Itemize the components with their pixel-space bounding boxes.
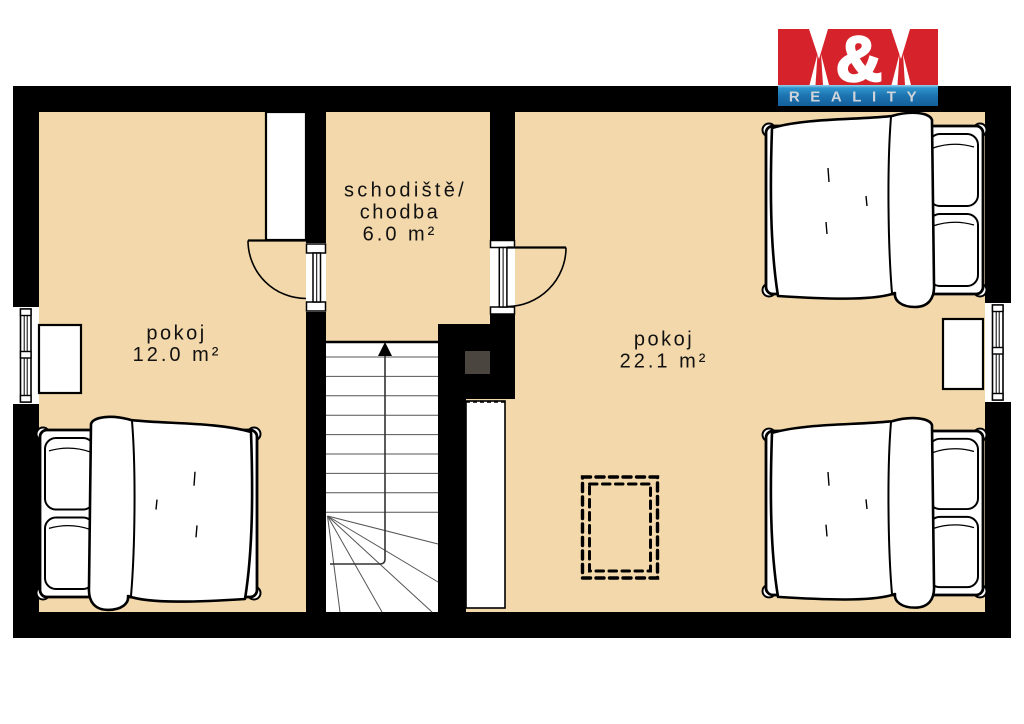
svg-text:REALITY: REALITY <box>789 89 927 106</box>
svg-text:chodba: chodba <box>360 202 441 224</box>
svg-text:pokoj: pokoj <box>634 329 694 351</box>
svg-text:22.1 m²: 22.1 m² <box>620 351 709 373</box>
svg-text:schodiště/: schodiště/ <box>344 180 467 202</box>
svg-text:12.0 m²: 12.0 m² <box>133 344 222 366</box>
svg-text:pokoj: pokoj <box>146 323 206 345</box>
svg-text:&: & <box>836 23 882 95</box>
svg-text:6.0 m²: 6.0 m² <box>363 224 438 246</box>
